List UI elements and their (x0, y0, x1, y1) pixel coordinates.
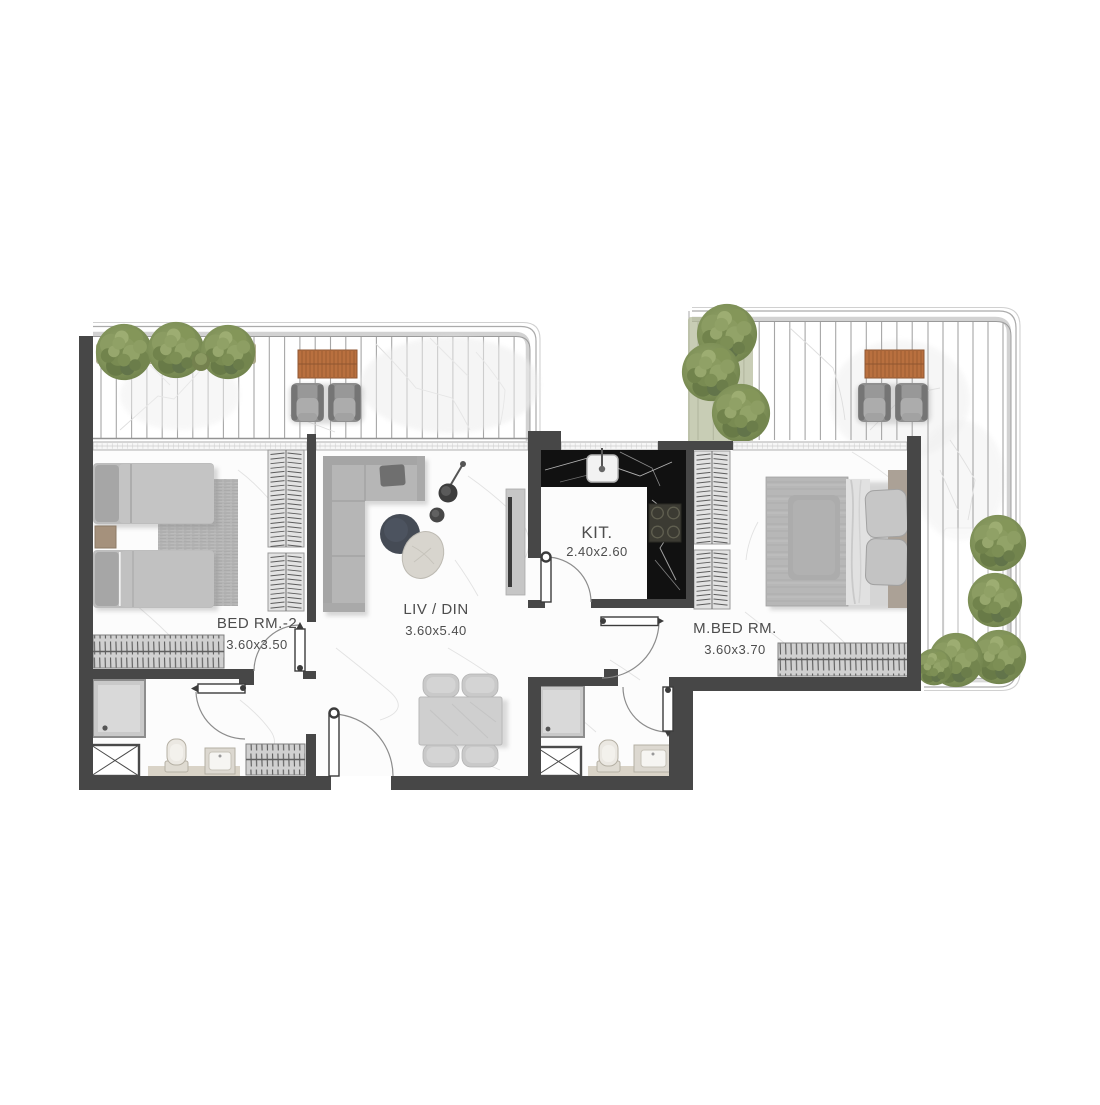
svg-text:BED RM.-2: BED RM.-2 (217, 615, 297, 632)
svg-text:2.40x2.60: 2.40x2.60 (566, 544, 628, 559)
svg-text:M.BED RM.: M.BED RM. (693, 620, 777, 637)
svg-text:3.60x3.70: 3.60x3.70 (704, 642, 766, 657)
svg-text:LIV / DIN: LIV / DIN (403, 601, 468, 618)
svg-text:3.60x3.50: 3.60x3.50 (226, 637, 288, 652)
svg-text:3.60x5.40: 3.60x5.40 (405, 623, 467, 638)
svg-text:KIT.: KIT. (581, 523, 612, 542)
